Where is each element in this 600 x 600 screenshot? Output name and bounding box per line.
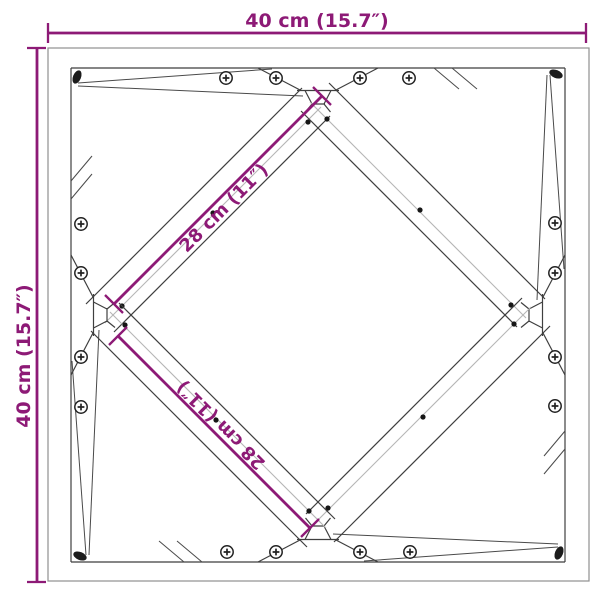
top-width-label: 40 cm (15.7″): [245, 10, 388, 32]
frame-drawing: [48, 48, 589, 581]
diagonal-upper-label: 28 cm (11″): [175, 159, 272, 256]
frame-edge-right: [301, 68, 565, 562]
dimension-diagram-canvas: 40 cm (15.7″) 40 cm (15.7″) 28 cm (11″) …: [0, 0, 600, 600]
left-height-label: 40 cm (15.7″): [13, 284, 35, 427]
frame-edge-bottom: [71, 298, 565, 562]
diagonal-lower-label: 28 cm (11″): [172, 376, 269, 473]
frame-edge-left: [71, 68, 335, 562]
frame-edge-top: [71, 68, 565, 332]
